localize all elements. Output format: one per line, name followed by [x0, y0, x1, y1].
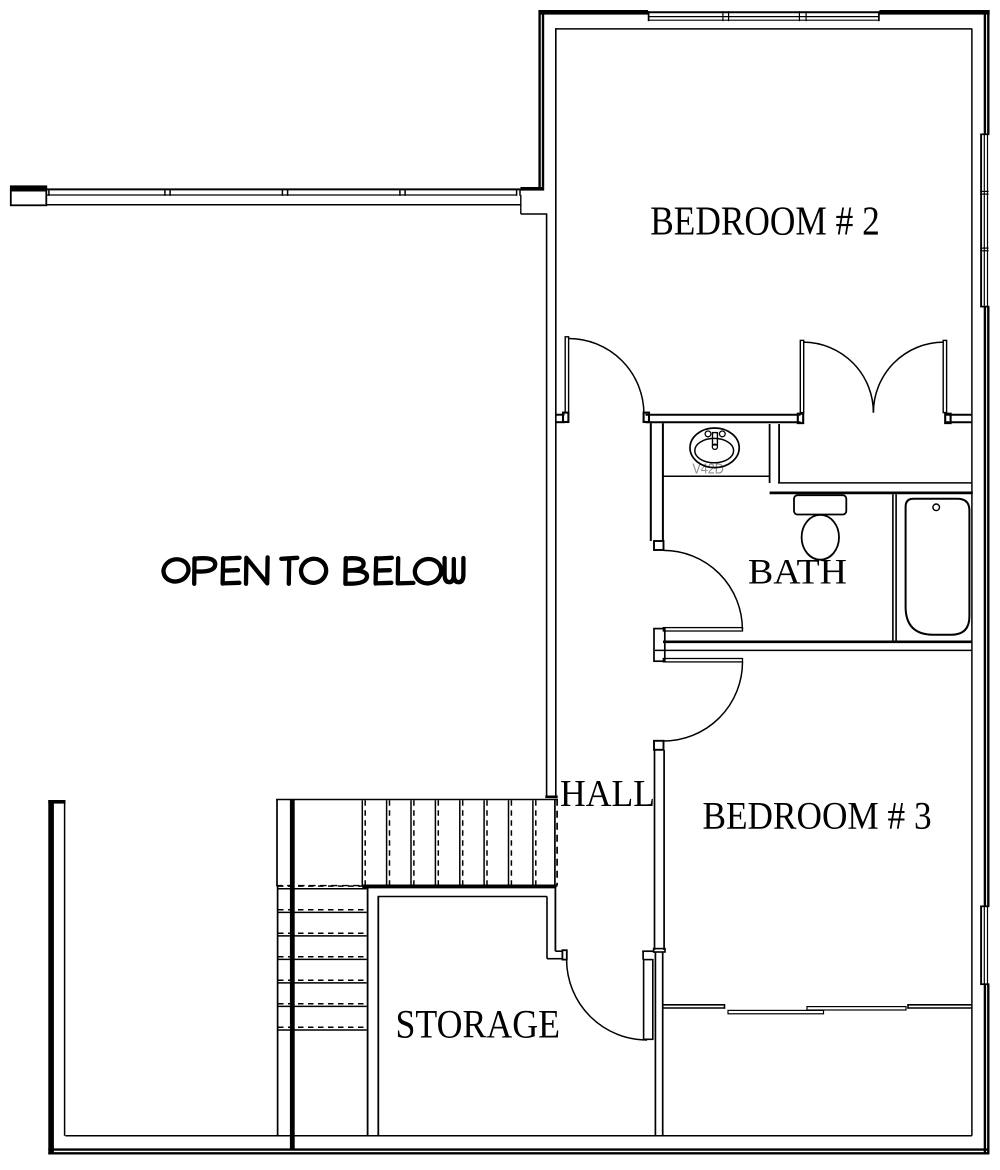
svg-text:HALL: HALL [560, 773, 655, 815]
svg-text:BATH: BATH [748, 552, 847, 592]
svg-text:STORAGE: STORAGE [396, 1002, 561, 1047]
svg-text:V42D: V42D [692, 462, 724, 478]
svg-text:BEDROOM # 3: BEDROOM # 3 [703, 793, 932, 837]
svg-text:BEDROOM # 2: BEDROOM # 2 [650, 198, 880, 244]
